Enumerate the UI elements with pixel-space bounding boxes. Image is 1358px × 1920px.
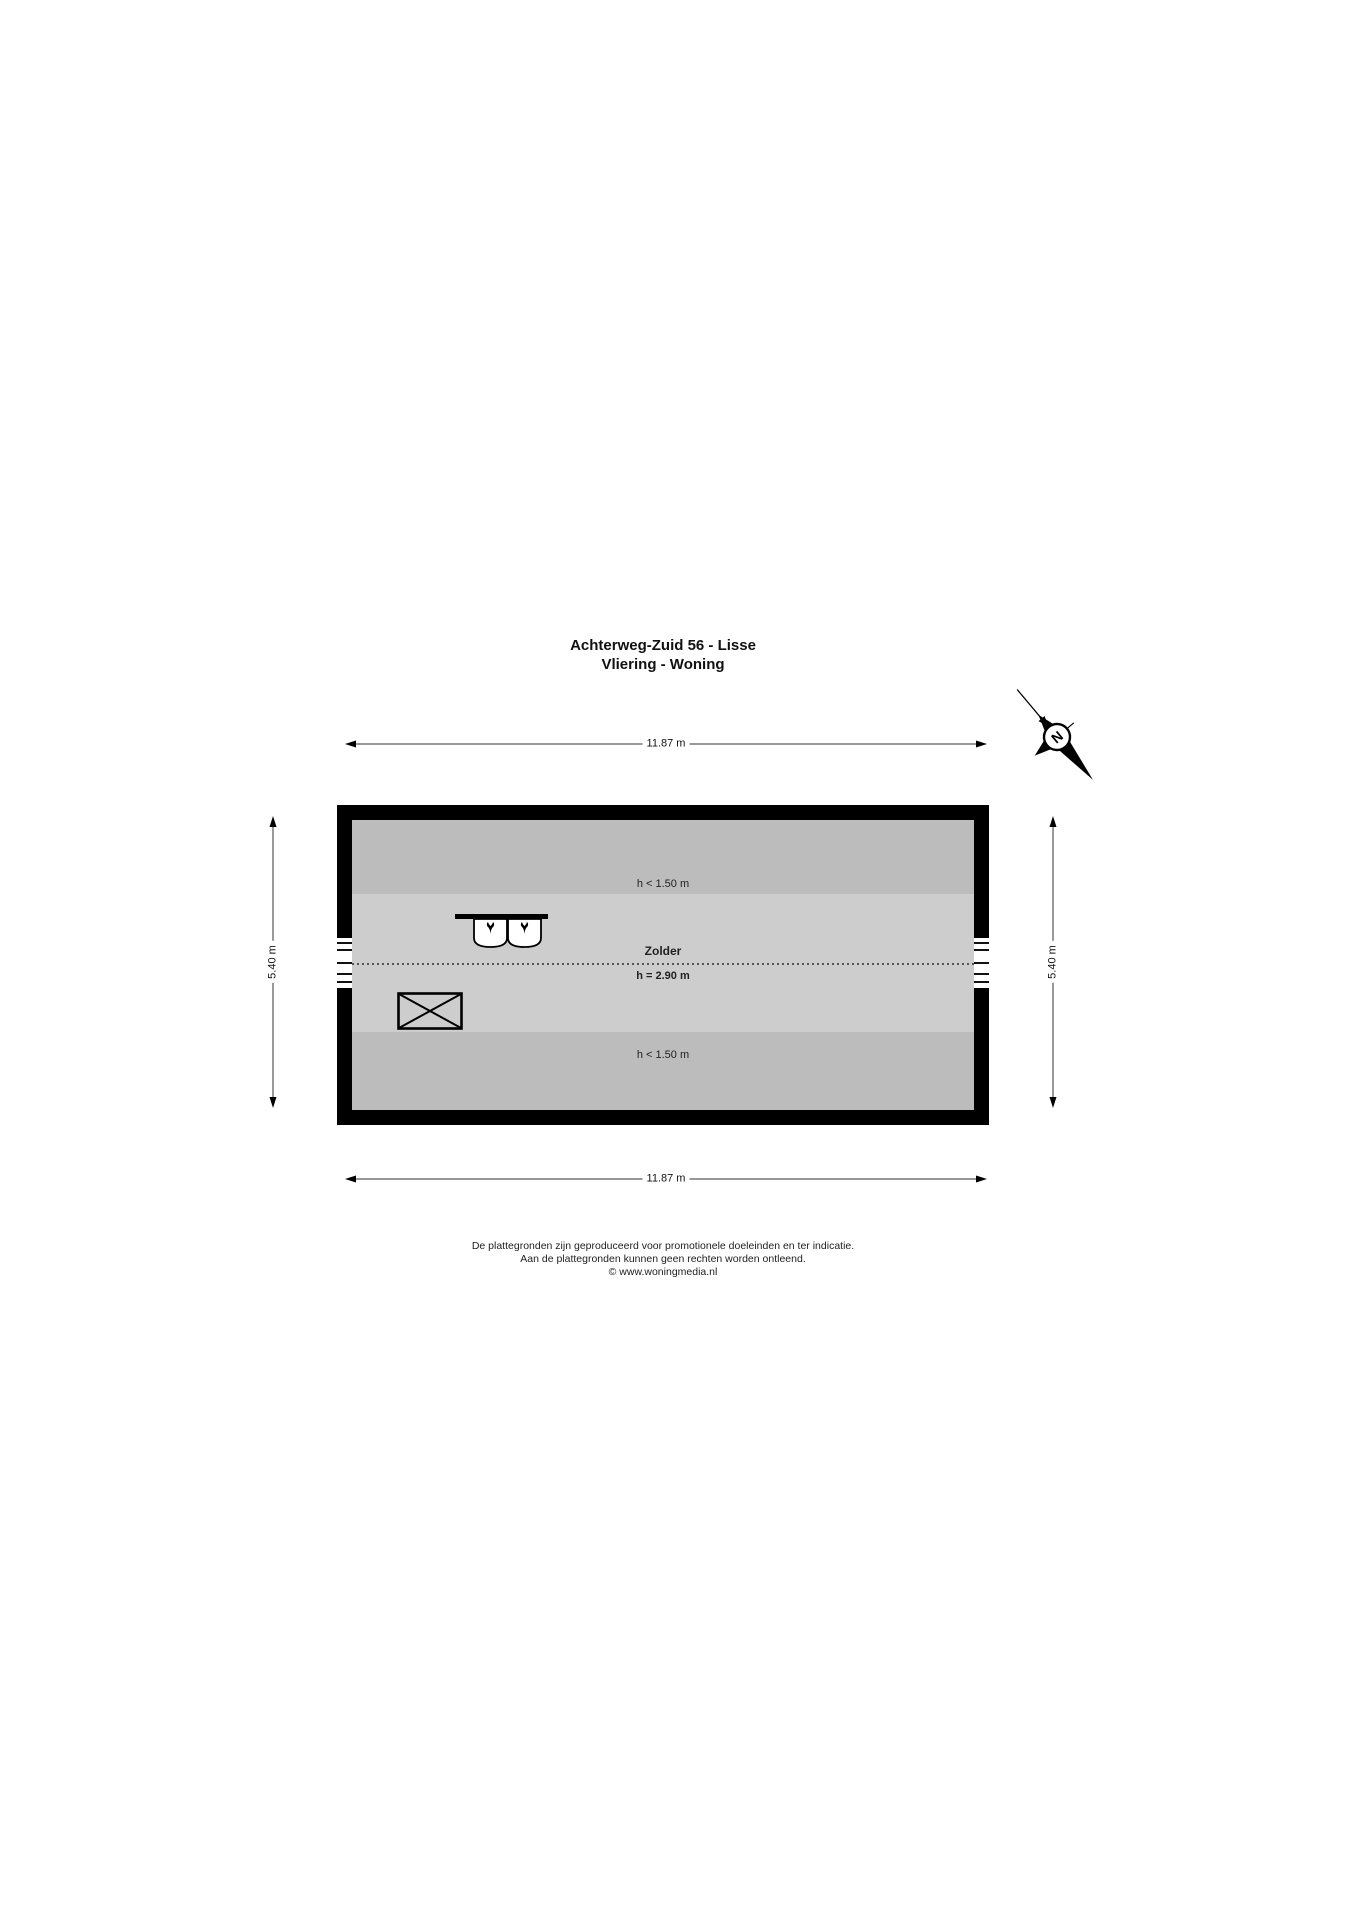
floorplan-outline: h < 1.50 m Zolder h = 2.90 m h < 1.50 m <box>337 805 989 1125</box>
compass-svg: N <box>1010 680 1120 790</box>
low-headroom-label-bottom: h < 1.50 m <box>352 1049 974 1062</box>
window-pane <box>974 949 989 951</box>
window-pane <box>974 981 989 983</box>
window-pane <box>974 973 989 975</box>
room-height-label: h = 2.90 m <box>352 970 974 983</box>
arrow-right-icon <box>976 1176 987 1183</box>
headroom-contour-dotted-line <box>352 963 974 965</box>
dimension-line-left: 5.40 m <box>267 816 279 1108</box>
floorplan-page: Achterweg-Zuid 56 - Lisse Vliering - Won… <box>0 0 1358 1920</box>
footer-copyright: © www.woningmedia.nl <box>287 1266 1039 1279</box>
void-opening-icon <box>397 992 463 1030</box>
void-opening-svg <box>397 992 463 1030</box>
dimension-label-left: 5.40 m <box>267 941 280 983</box>
window-pane <box>337 949 352 951</box>
window-pane <box>337 973 352 975</box>
arrow-down-icon <box>270 1097 277 1108</box>
dimension-line-bottom: 11.87 m <box>345 1173 987 1185</box>
arrow-up-icon <box>1050 816 1057 827</box>
double-washbasin-icon <box>452 910 552 955</box>
arrow-right-icon <box>976 741 987 748</box>
double-washbasin-svg <box>452 910 552 955</box>
window-pane <box>337 942 352 944</box>
arrow-left-icon <box>345 1176 356 1183</box>
dimension-line-top: 11.87 m <box>345 738 987 750</box>
window-pane <box>974 962 989 964</box>
window-left-icon <box>337 938 352 988</box>
title-address: Achterweg-Zuid 56 - Lisse <box>337 636 989 655</box>
window-pane <box>974 942 989 944</box>
window-pane <box>337 962 352 964</box>
arrow-down-icon <box>1050 1097 1057 1108</box>
compass-north-icon: N <box>1010 680 1120 790</box>
arrow-left-icon <box>345 741 356 748</box>
room-name-label: Zolder <box>352 945 974 958</box>
dimension-label-top: 11.87 m <box>643 738 690 751</box>
title-floor: Vliering - Woning <box>337 655 989 674</box>
dimension-label-right: 5.40 m <box>1047 941 1060 983</box>
attic-interior: h < 1.50 m Zolder h = 2.90 m h < 1.50 m <box>352 820 974 1110</box>
dimension-line-right: 5.40 m <box>1047 816 1059 1108</box>
footer-disclaimer: De plattegronden zijn geproduceerd voor … <box>287 1240 1039 1279</box>
dimension-label-bottom: 11.87 m <box>643 1173 690 1186</box>
low-headroom-label-top: h < 1.50 m <box>352 878 974 891</box>
footer-line-1: De plattegronden zijn geproduceerd voor … <box>287 1240 1039 1253</box>
footer-line-2: Aan de plattegronden kunnen geen rechten… <box>287 1253 1039 1266</box>
arrow-up-icon <box>270 816 277 827</box>
window-pane <box>337 981 352 983</box>
window-right-icon <box>974 938 989 988</box>
page-title: Achterweg-Zuid 56 - Lisse Vliering - Won… <box>337 636 989 674</box>
low-headroom-zone-bottom <box>352 1032 974 1110</box>
